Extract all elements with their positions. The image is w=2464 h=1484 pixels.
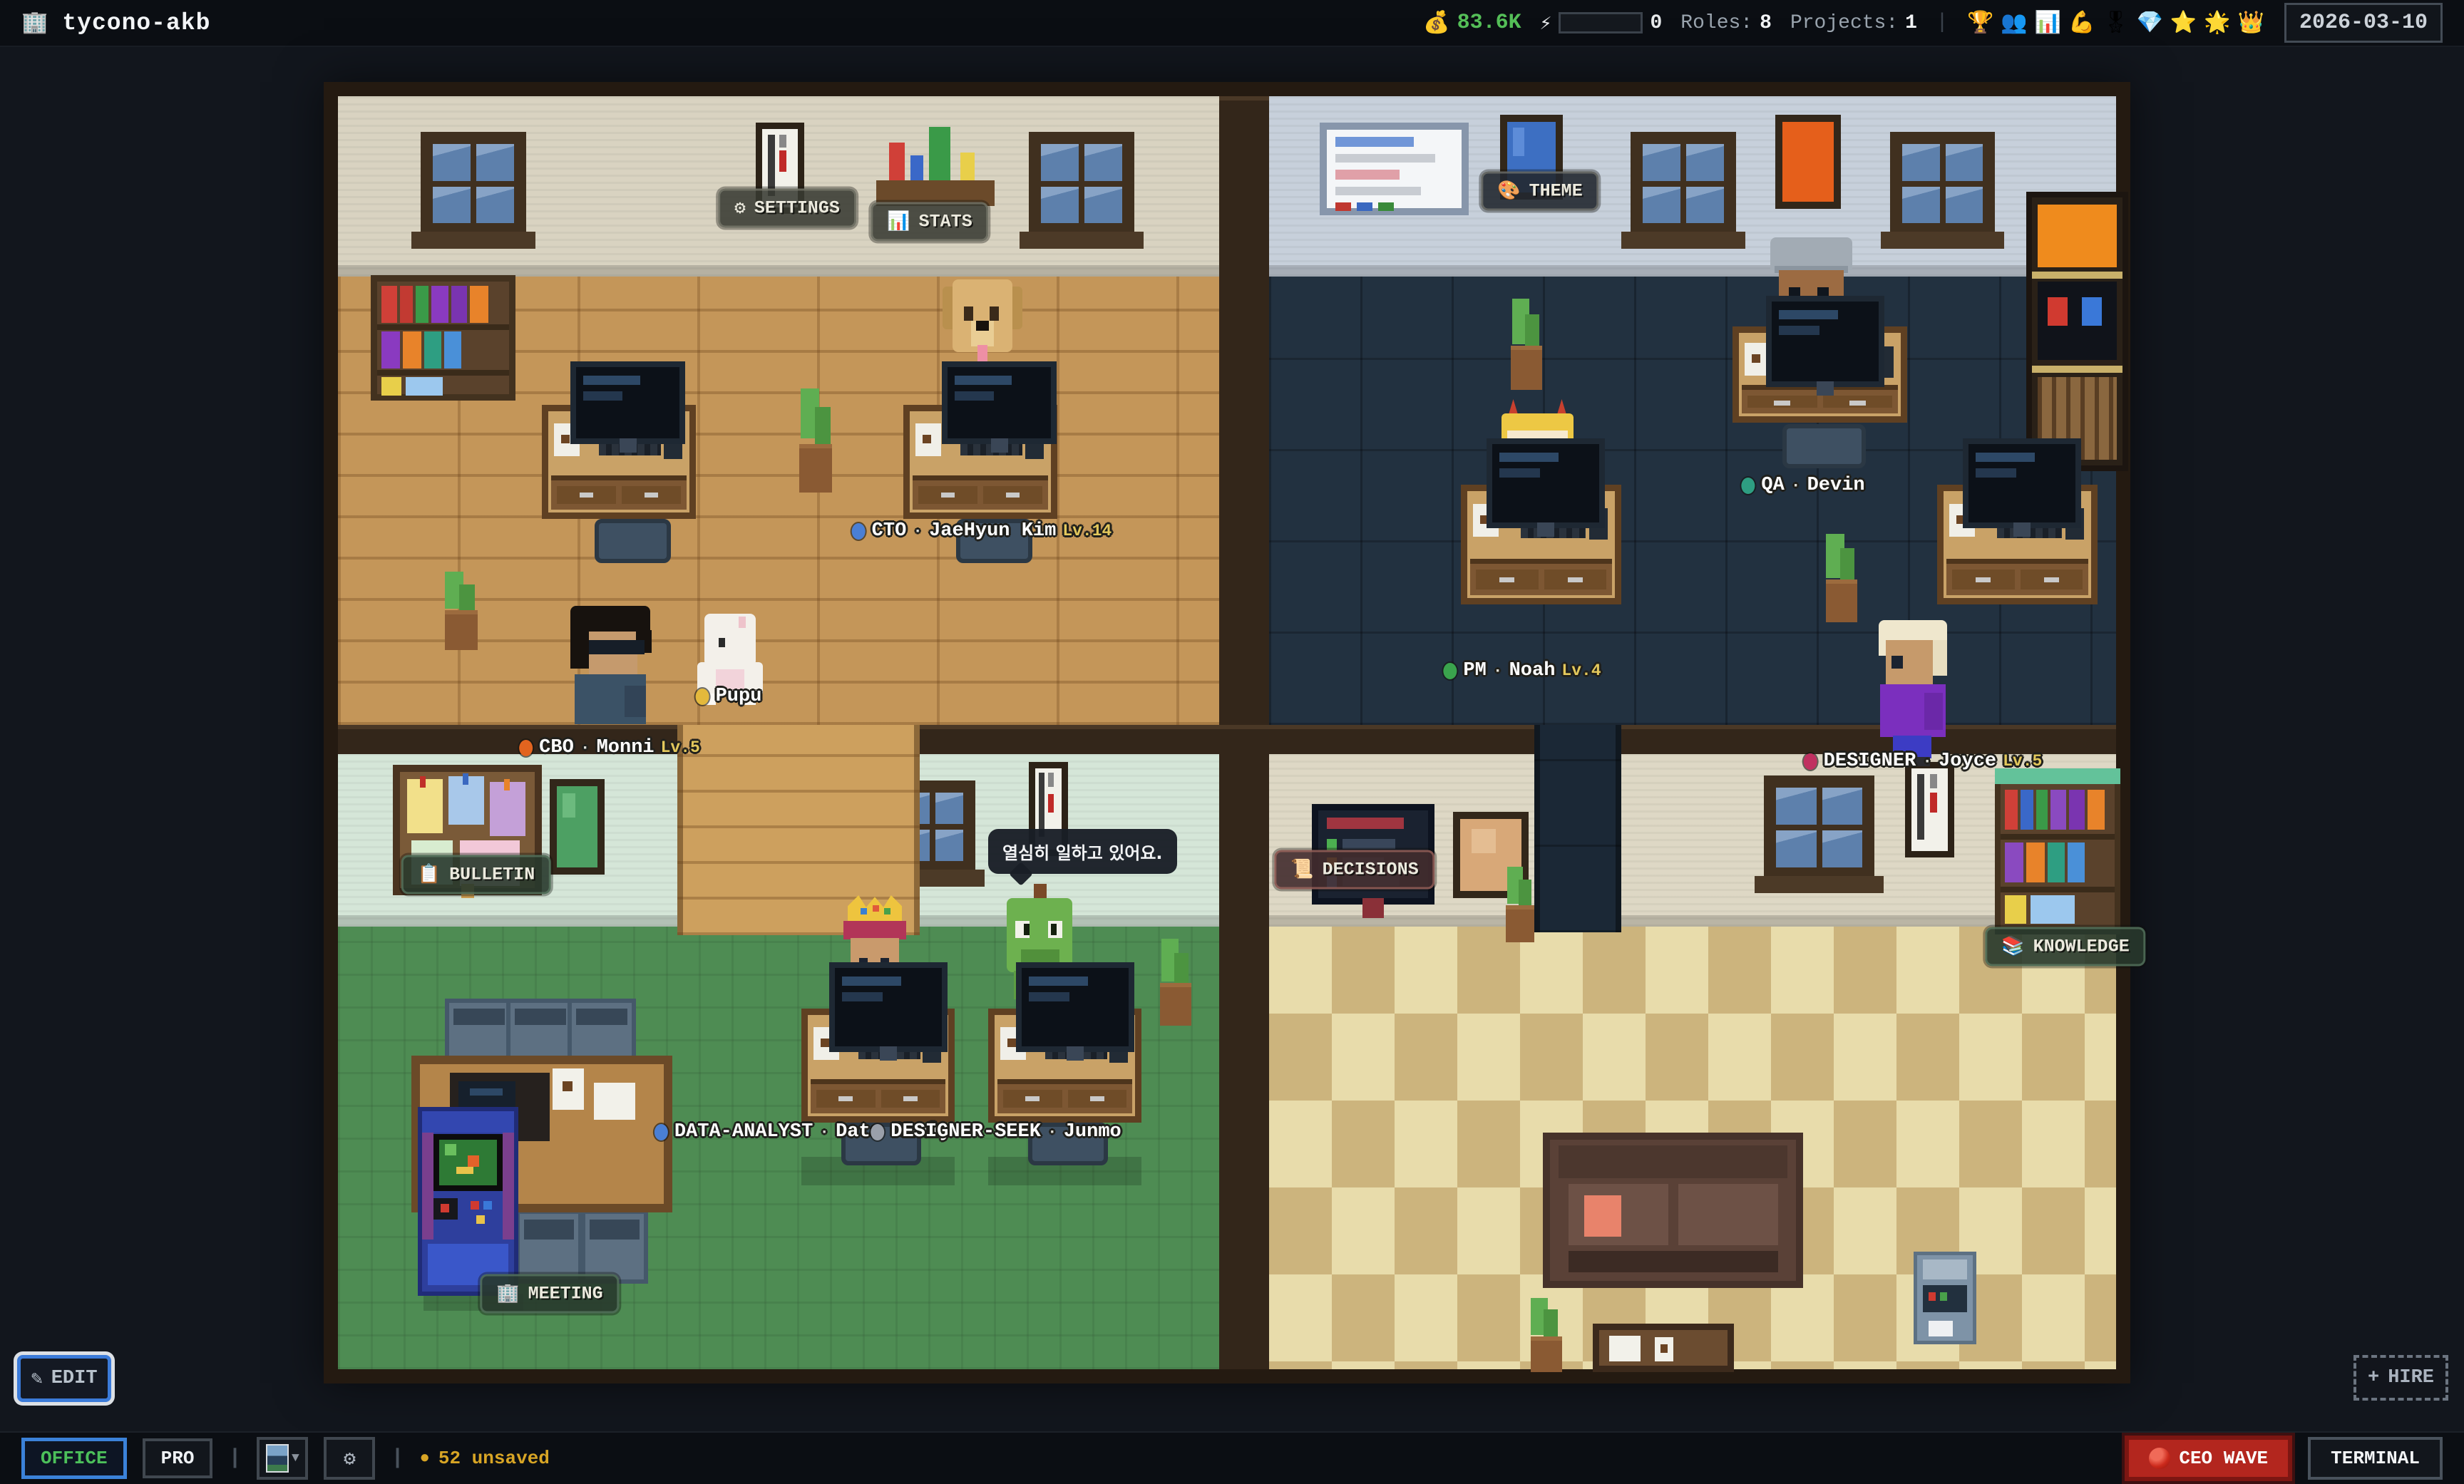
- tag-level: Lv.5: [2003, 752, 2042, 771]
- medal-icon: 🎖: [2102, 10, 2130, 36]
- chart-icon: 📊: [2035, 10, 2063, 36]
- money-icon: 💰: [1423, 10, 1449, 36]
- book-shelf: [876, 127, 995, 206]
- bottom-divider: |: [391, 1446, 404, 1470]
- name-tag-cto: CTO · JaeHyun Kim Lv.14: [852, 520, 1112, 542]
- desk-monitor: [942, 361, 1057, 444]
- tag-name: JaeHyun Kim: [929, 520, 1056, 542]
- hire-button-label: HIRE: [2388, 1367, 2434, 1388]
- tag-name: Junmo: [1064, 1121, 1121, 1143]
- office-icon: 🏢: [496, 1283, 519, 1305]
- unsaved-label: 52 unsaved: [438, 1448, 550, 1469]
- status-dot: [519, 740, 533, 756]
- theme-sign[interactable]: 🎨 THEME: [1481, 172, 1598, 211]
- glowing-star-icon: 🌟: [2204, 10, 2232, 36]
- tab-office[interactable]: OFFICE: [21, 1438, 127, 1479]
- settings-button[interactable]: ⚙: [324, 1437, 375, 1480]
- bookcase: [371, 275, 515, 401]
- status-dot: [1741, 478, 1755, 494]
- window: [421, 132, 526, 235]
- app-title: tycono-akb: [62, 10, 210, 36]
- potted-plant: [1500, 867, 1543, 940]
- coffee-table: [1593, 1324, 1734, 1372]
- name-tag-designer: DESIGNER · Joyce Lv.5: [1804, 751, 2043, 772]
- water-cooler: [1914, 1252, 1976, 1344]
- top-bar-status: 💰 83.6K ⚡ 0 Roles:8 Projects:1 | 🏆 👥 📊 💪…: [1423, 3, 2443, 43]
- bottom-divider: |: [228, 1446, 241, 1470]
- name-tag-cbo: CBO · Monni Lv.5: [519, 737, 700, 758]
- trophy-icon: 🏆: [1967, 10, 1995, 36]
- green-painting: [550, 779, 605, 875]
- decisions-sign[interactable]: 📜 DECISIONS: [1274, 850, 1434, 890]
- red-dot-icon: [2149, 1448, 2170, 1469]
- energy-bar: [1559, 12, 1643, 34]
- roles-label: Roles:: [1680, 12, 1752, 34]
- settings-sign[interactable]: ⚙ SETTINGS: [718, 189, 856, 228]
- gear-icon: ⚙: [734, 197, 746, 220]
- pencil-icon: ✎: [31, 1367, 42, 1391]
- stats-sign[interactable]: 📊 STATS: [871, 202, 988, 242]
- top-divider: |: [1936, 11, 1949, 35]
- energy-icon: ⚡: [1540, 11, 1552, 36]
- tag-role: QA: [1761, 475, 1784, 496]
- character-joyce-designer[interactable]: [1877, 620, 1949, 766]
- potted-plant: [791, 388, 841, 495]
- muscle-icon: 💪: [2068, 10, 2096, 36]
- tag-role: DESIGNER-SEEK: [890, 1121, 1041, 1143]
- tag-name: Noah: [1509, 660, 1556, 681]
- tag-role: DATA-ANALYST: [674, 1121, 813, 1143]
- potted-plant: [1524, 1298, 1571, 1369]
- scene-thumbnail-icon: [266, 1444, 289, 1473]
- top-bar: 🏢 tycono-akb 💰 83.6K ⚡ 0 Roles:8 Project…: [0, 0, 2464, 47]
- desk-monitor: [570, 361, 685, 444]
- window: [1764, 776, 1874, 880]
- terminal-button[interactable]: TERMINAL: [2308, 1437, 2443, 1480]
- scene-select-button[interactable]: ▼: [257, 1437, 308, 1480]
- crown-icon: 👑: [2238, 10, 2266, 36]
- meeting-chair: [506, 999, 575, 1061]
- date-display: 2026-03-10: [2284, 3, 2443, 43]
- name-tag-designer-seek: DESIGNER-SEEK · Junmo: [871, 1121, 1121, 1143]
- tag-role: CBO: [539, 737, 574, 758]
- scroll-icon: 📜: [1290, 859, 1313, 881]
- roles-value: 8: [1760, 12, 1772, 34]
- achievement-badges: 🏆 👥 📊 💪 🎖 💎 ⭐ 🌟 👑: [1967, 10, 2266, 36]
- projects-label: Projects:: [1790, 12, 1898, 34]
- energy-status: ⚡ 0: [1540, 11, 1663, 36]
- stats-sign-label: STATS: [919, 212, 972, 232]
- name-tag-qa: QA · Devin: [1741, 475, 1864, 496]
- desk-monitor: [829, 962, 948, 1052]
- meeting-chair: [568, 999, 636, 1061]
- tag-level: Lv.5: [661, 738, 700, 757]
- edit-button-label: EDIT: [51, 1368, 98, 1389]
- unsaved-status: ● 52 unsaved: [419, 1448, 549, 1469]
- meeting-sign-label: MEETING: [528, 1284, 603, 1304]
- game-stage: 🏢 tycono-akb 💰 83.6K ⚡ 0 Roles:8 Project…: [0, 0, 2464, 1484]
- bulletin-sign-label: BULLETIN: [449, 865, 535, 885]
- hallway-right: [1534, 725, 1621, 932]
- meeting-chair: [445, 999, 513, 1061]
- money-value: 83.6K: [1457, 11, 1521, 35]
- tag-name: Devin: [1807, 475, 1865, 496]
- knowledge-bookshelf: [1995, 770, 2120, 934]
- window: [1029, 132, 1134, 235]
- hire-button[interactable]: + HIRE: [2353, 1355, 2448, 1401]
- tag-name: Monni: [597, 737, 654, 758]
- window: [1631, 132, 1736, 235]
- status-dot: [654, 1124, 668, 1140]
- tag-level: Lv.4: [1561, 661, 1601, 680]
- window: [1890, 132, 1995, 235]
- office-chair: [595, 519, 671, 563]
- whiteboard: [1320, 123, 1469, 215]
- character-dog-pet[interactable]: [943, 279, 1022, 371]
- projects-status: Projects:1: [1790, 12, 1917, 34]
- edit-button[interactable]: ✎ EDIT: [17, 1355, 111, 1402]
- status-dot: [696, 689, 709, 705]
- desk-monitor: [1963, 438, 2081, 528]
- roles-status: Roles:8: [1680, 12, 1772, 34]
- name-tag-pupu: Pupu: [696, 686, 762, 707]
- tag-role: DESIGNER: [1824, 751, 1916, 772]
- meeting-sign[interactable]: 🏢 MEETING: [480, 1274, 619, 1314]
- projects-value: 1: [1905, 12, 1917, 34]
- vending-machine: [2026, 192, 2128, 471]
- money-status: 💰 83.6K: [1423, 10, 1521, 36]
- meeting-chair: [581, 1210, 648, 1284]
- speech-bubble-text: 열심히 일하고 있어요.: [1002, 843, 1163, 863]
- star-icon: ⭐: [2170, 10, 2198, 36]
- wall-chart-poster: [1905, 762, 1954, 857]
- arcade-machine[interactable]: [418, 1107, 518, 1296]
- tag-level: Lv.14: [1062, 522, 1112, 540]
- tag-name: Joyce: [1939, 751, 1996, 772]
- potted-plant: [436, 572, 487, 647]
- gear-icon: ⚙: [344, 1446, 356, 1471]
- status-dot: [1443, 663, 1457, 679]
- potted-plant: [1819, 534, 1867, 620]
- office-chair: [1782, 424, 1866, 468]
- clipboard-icon: 📋: [418, 864, 441, 886]
- desk-monitor: [1016, 962, 1134, 1052]
- plus-icon: +: [2368, 1367, 2379, 1388]
- chevron-down-icon: ▼: [292, 1451, 299, 1465]
- status-dot: [871, 1124, 884, 1140]
- orange-painting: [1775, 115, 1841, 209]
- settings-sign-label: SETTINGS: [754, 198, 840, 219]
- books-icon: 📚: [2001, 936, 2024, 958]
- building-icon: 🏢: [21, 10, 48, 36]
- status-dot: [852, 523, 866, 540]
- desk-monitor: [1766, 296, 1884, 387]
- potted-plant: [1154, 939, 1200, 1024]
- office-map: ⚙ SETTINGS 📊 STATS 🎨 THEME 📋 BULLETIN 📜 …: [324, 82, 2130, 1383]
- meeting-chair: [515, 1210, 582, 1284]
- gem-icon: 💎: [2137, 10, 2165, 36]
- name-tag-pm: PM · Noah Lv.4: [1443, 660, 1601, 681]
- knowledge-sign[interactable]: 📚 KNOWLEDGE: [1985, 927, 2145, 967]
- tag-role: PM: [1463, 660, 1486, 681]
- energy-value: 0: [1650, 12, 1662, 34]
- ceo-wave-label: CEO WAVE: [2179, 1448, 2268, 1469]
- theme-sign-label: THEME: [1529, 181, 1583, 202]
- tag-role: CTO: [872, 520, 907, 542]
- bulletin-sign[interactable]: 📋 BULLETIN: [401, 855, 551, 895]
- knowledge-sign-label: KNOWLEDGE: [2033, 937, 2130, 957]
- tab-pro[interactable]: PRO: [143, 1438, 213, 1478]
- couch: [1543, 1133, 1803, 1288]
- decisions-sign-label: DECISIONS: [1323, 860, 1419, 880]
- people-icon: 👥: [2001, 10, 2028, 36]
- tag-name: Pupu: [716, 686, 762, 707]
- status-dot: [1804, 753, 1817, 770]
- palette-icon: 🎨: [1497, 180, 1520, 202]
- potted-plant: [1505, 299, 1551, 389]
- speech-bubble: 열심히 일하고 있어요.: [988, 829, 1177, 874]
- desk-monitor: [1487, 438, 1605, 528]
- bar-chart-icon: 📊: [887, 211, 910, 233]
- bottom-bar: OFFICE PRO | ▼ ⚙ | ● 52 unsaved CEO WAVE…: [0, 1431, 2464, 1484]
- character-monni-cbo[interactable]: [569, 606, 654, 724]
- unsaved-dot-icon: ●: [419, 1449, 429, 1468]
- ceo-wave-button[interactable]: CEO WAVE: [2125, 1436, 2292, 1481]
